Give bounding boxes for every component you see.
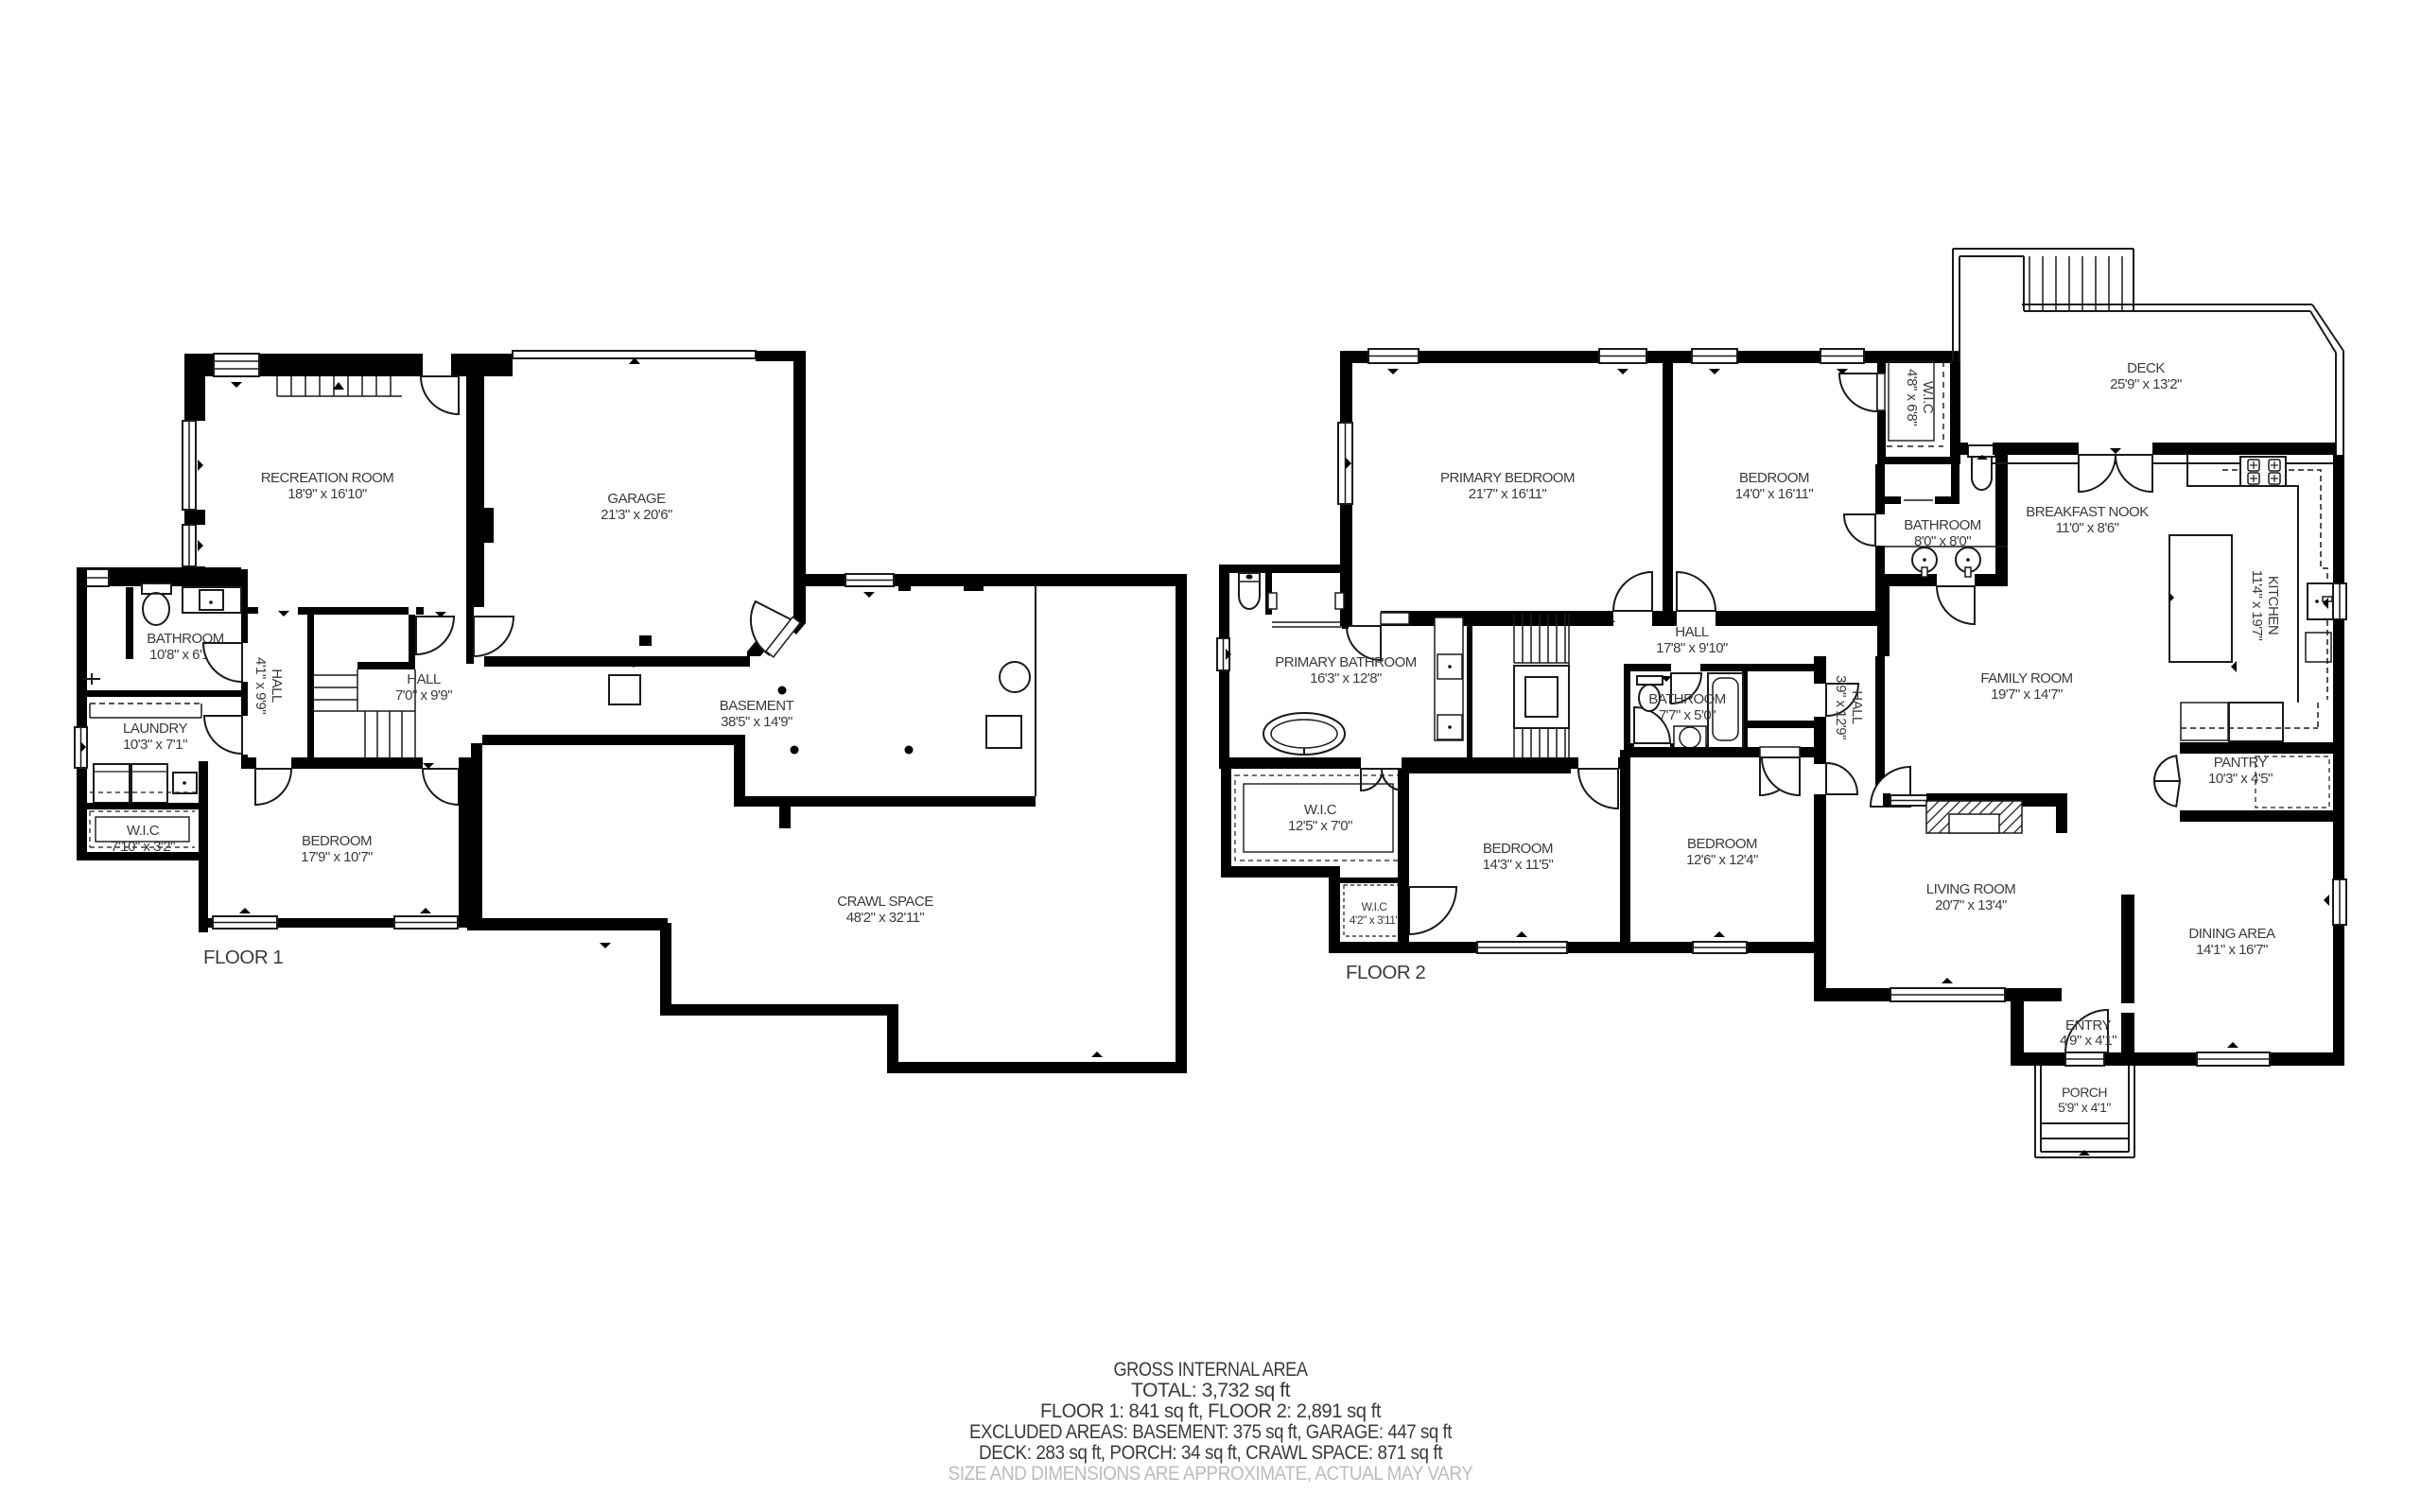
svg-text:HALL17'8" x 9'10": HALL17'8" x 9'10" (1656, 624, 1728, 656)
svg-text:HALL4'1" x 9'9": HALL4'1" x 9'9" (253, 657, 285, 714)
svg-text:BATHROOM7'7" x 5'0": BATHROOM7'7" x 5'0" (1648, 691, 1726, 723)
svg-text:TOTAL: 3,732 sq ft: TOTAL: 3,732 sq ft (1131, 1379, 1291, 1401)
svg-text:DINING AREA14'1" x 16'7": DINING AREA14'1" x 16'7" (2188, 926, 2275, 958)
svg-text:W.I.C4'2" x 3'11": W.I.C4'2" x 3'11" (1350, 900, 1399, 927)
svg-text:FLOOR 2: FLOOR 2 (1346, 962, 1425, 983)
svg-text:DECK: 283 sq ft, PORCH: 34 sq: DECK: 283 sq ft, PORCH: 34 sq ft, CRAWL … (979, 1441, 1442, 1464)
svg-text:PANTRY10'3" x 4'5": PANTRY10'3" x 4'5" (2208, 755, 2273, 787)
svg-text:BREAKFAST NOOK11'0" x 8'6": BREAKFAST NOOK11'0" x 8'6" (2026, 504, 2149, 536)
svg-text:PRIMARY BEDROOM21'7" x 16'11": PRIMARY BEDROOM21'7" x 16'11" (1440, 470, 1575, 502)
svg-text:GROSS INTERNAL AREA: GROSS INTERNAL AREA (1114, 1358, 1309, 1381)
svg-text:GARAGE21'3" x 20'6": GARAGE21'3" x 20'6" (601, 491, 672, 523)
svg-text:EXCLUDED AREAS: BASEMENT: 375: EXCLUDED AREAS: BASEMENT: 375 sq ft, GAR… (969, 1420, 1452, 1443)
svg-text:LAUNDRY10'3" x 7'1": LAUNDRY10'3" x 7'1" (123, 721, 187, 753)
svg-text:W.I.C4'8" x 6'8": W.I.C4'8" x 6'8" (1904, 369, 1936, 426)
svg-text:BEDROOM17'9" x 10'7": BEDROOM17'9" x 10'7" (301, 833, 373, 865)
svg-text:KITCHEN11'4" x 19'7": KITCHEN11'4" x 19'7" (2249, 570, 2281, 641)
svg-text:PORCH5'9" x 4'1": PORCH5'9" x 4'1" (2058, 1085, 2111, 1115)
svg-text:FLOOR 1: 841 sq ft, FLOOR 2: 2: FLOOR 1: 841 sq ft, FLOOR 2: 2,891 sq ft (1040, 1399, 1381, 1422)
svg-text:BEDROOM14'0" x 16'11": BEDROOM14'0" x 16'11" (1735, 470, 1814, 502)
svg-text:RECREATION ROOM18'9" x 16'10": RECREATION ROOM18'9" x 16'10" (261, 470, 394, 502)
svg-text:BEDROOM14'3" x 11'5": BEDROOM14'3" x 11'5" (1483, 841, 1554, 873)
svg-text:BEDROOM12'6" x 12'4": BEDROOM12'6" x 12'4" (1686, 836, 1758, 868)
svg-text:HALL3'9" x 12'9": HALL3'9" x 12'9" (1833, 675, 1865, 739)
svg-text:W.I.C7'10" x 3'2": W.I.C7'10" x 3'2" (111, 823, 175, 855)
svg-text:FAMILY ROOM19'7" x 14'7": FAMILY ROOM19'7" x 14'7" (1980, 670, 2072, 703)
svg-text:CRAWL SPACE48'2" x 32'11": CRAWL SPACE48'2" x 32'11" (837, 894, 933, 926)
svg-text:W.I.C12'5" x 7'0": W.I.C12'5" x 7'0" (1288, 802, 1352, 834)
svg-text:DECK25'9" x 13'2": DECK25'9" x 13'2" (2110, 360, 2182, 392)
svg-text:SIZE AND DIMENSIONS ARE APPROX: SIZE AND DIMENSIONS ARE APPROXIMATE, ACT… (949, 1462, 1473, 1485)
svg-text:HALL7'0" x 9'9": HALL7'0" x 9'9" (395, 671, 452, 704)
svg-text:PRIMARY BATHROOM16'3" x 12'8": PRIMARY BATHROOM16'3" x 12'8" (1275, 654, 1417, 686)
svg-text:BATHROOM8'0" x 8'0": BATHROOM8'0" x 8'0" (1904, 517, 1981, 549)
svg-text:BASEMENT38'5" x 14'9": BASEMENT38'5" x 14'9" (720, 698, 794, 730)
svg-text:FLOOR 1: FLOOR 1 (203, 947, 283, 968)
svg-text:LIVING ROOM20'7" x 13'4": LIVING ROOM20'7" x 13'4" (1926, 881, 2016, 913)
svg-text:ENTRY4'9" x 4'1": ENTRY4'9" x 4'1" (2060, 1017, 2116, 1049)
